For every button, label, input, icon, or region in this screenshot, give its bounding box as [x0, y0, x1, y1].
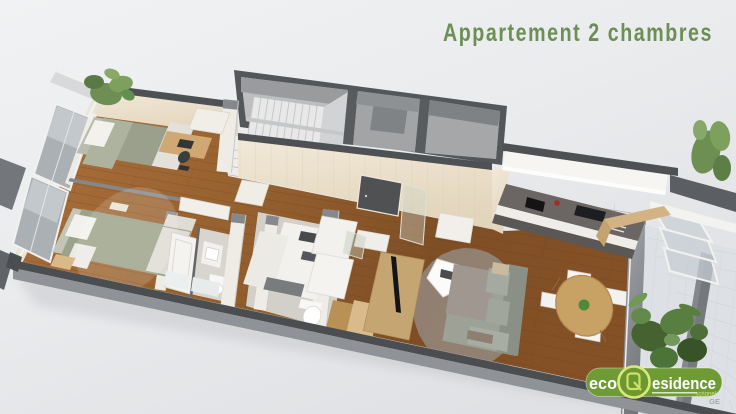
svg-text:eco: eco: [589, 375, 617, 393]
svg-text:Appartement 2 chambres: Appartement 2 chambres: [443, 19, 713, 47]
svg-text:esidence: esidence: [652, 375, 716, 393]
svg-text:GE: GE: [709, 397, 720, 406]
